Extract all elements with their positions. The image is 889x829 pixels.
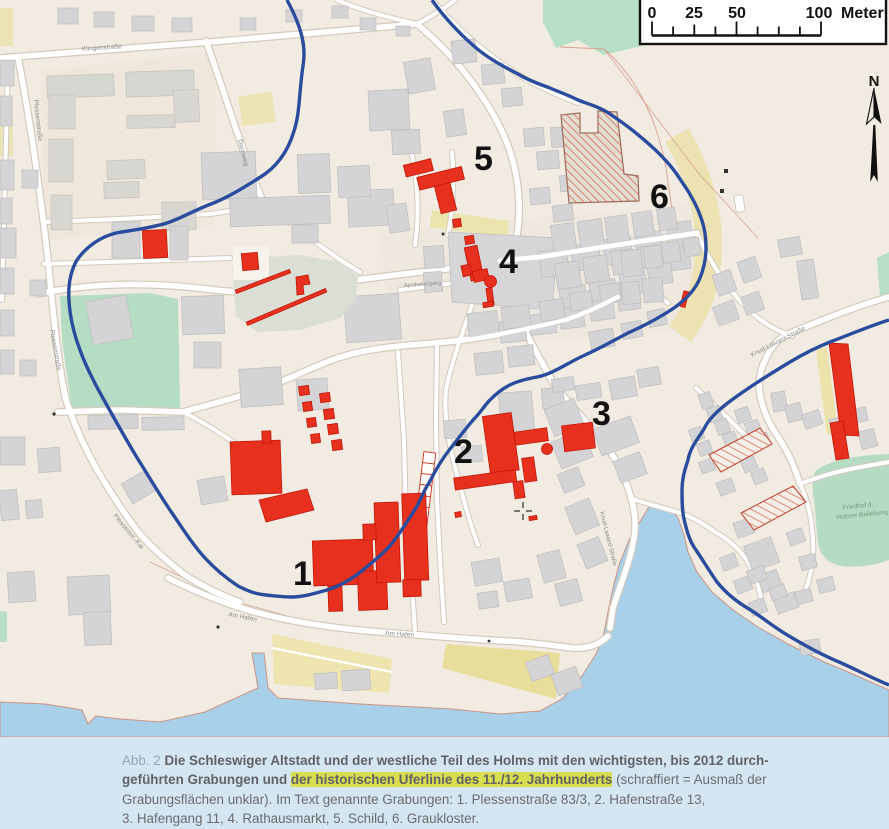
svg-text:100: 100	[806, 5, 833, 22]
svg-text:1: 1	[293, 555, 312, 593]
svg-text:25: 25	[685, 5, 703, 22]
svg-text:5: 5	[474, 140, 493, 178]
svg-text:Meter: Meter	[841, 5, 884, 22]
svg-text:6: 6	[650, 178, 669, 216]
svg-text:N: N	[869, 73, 880, 90]
svg-text:0: 0	[648, 5, 657, 22]
svg-text:50: 50	[728, 5, 746, 22]
svg-text:3: 3	[592, 395, 611, 433]
svg-text:2: 2	[454, 433, 473, 471]
svg-text:4: 4	[499, 243, 518, 281]
